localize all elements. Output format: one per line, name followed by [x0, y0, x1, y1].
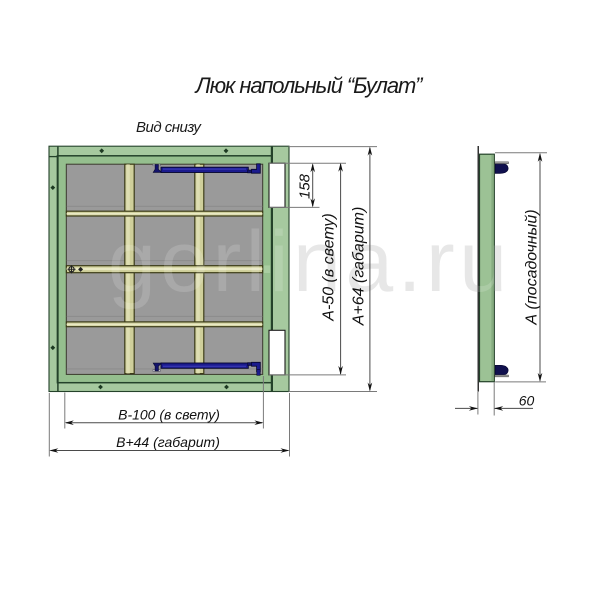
svg-text:В-100 (в свету): В-100 (в свету)	[118, 407, 220, 423]
svg-text:А (посадочный): А (посадочный)	[524, 209, 541, 325]
svg-text:60: 60	[519, 393, 535, 409]
svg-text:Вид снизу: Вид снизу	[136, 119, 202, 136]
svg-text:А-50 (в свету): А-50 (в свету)	[321, 213, 338, 321]
svg-text:В+44 (габарит): В+44 (габарит)	[116, 434, 220, 450]
svg-text:А+64 (габарит): А+64 (габарит)	[351, 207, 368, 327]
svg-text:gorlina.ru: gorlina.ru	[108, 214, 512, 310]
svg-text:158: 158	[297, 173, 314, 199]
svg-text:Люк напольный “Булат”: Люк напольный “Булат”	[194, 73, 425, 98]
